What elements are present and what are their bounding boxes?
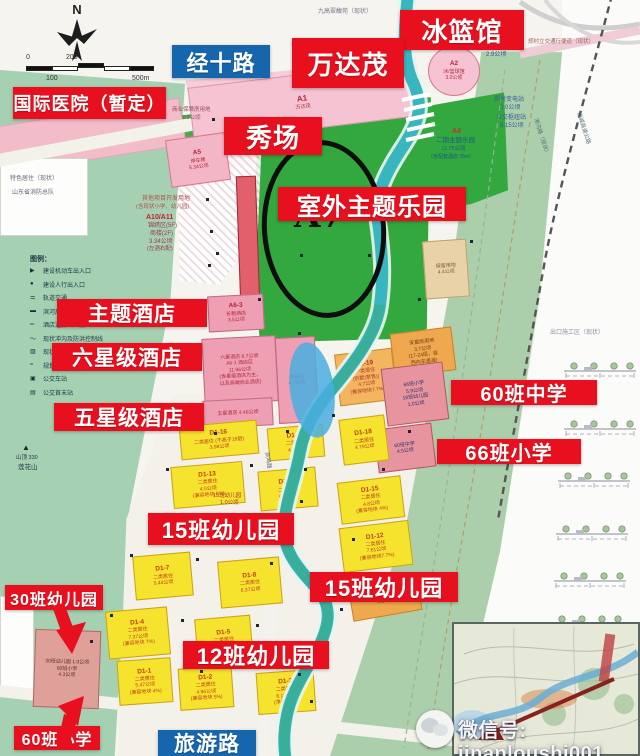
planning-map: A1万达茂A2冰/篮球馆3.0公顷A5停车楼5.34公顷A6-3长租酒店3.5公… — [0, 0, 640, 756]
wechat-logo-icon — [416, 710, 454, 748]
arrow-to-school-60 — [56, 696, 84, 750]
arrow-to-kg-30 — [52, 603, 86, 654]
watermark: 微信号: jinanloushi001 — [414, 702, 640, 754]
arrows-layer — [0, 0, 640, 756]
watermark-text: 微信号: jinanloushi001 — [458, 714, 640, 756]
